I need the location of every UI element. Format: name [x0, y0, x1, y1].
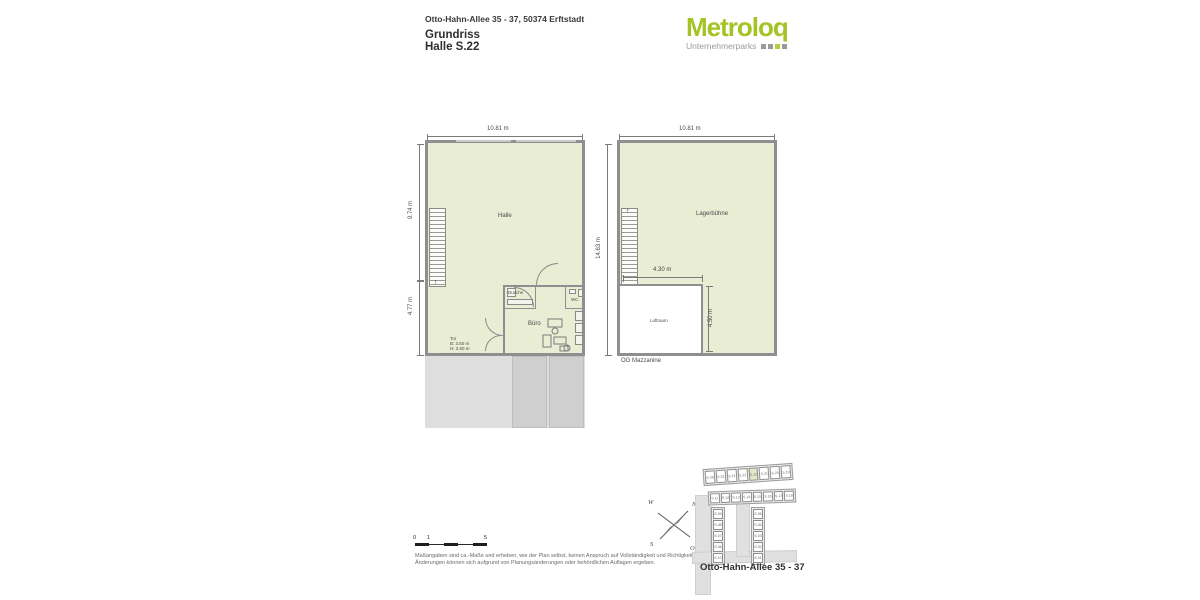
road	[695, 495, 711, 595]
door-arc	[485, 318, 503, 336]
site-unit: S.05	[753, 509, 763, 519]
void-width-line	[623, 277, 703, 278]
site-unit: S.20	[770, 466, 781, 480]
site-building-left-col: S.09S.08S.07S.06S.10	[711, 507, 725, 565]
storage-label: Lagerbühne	[696, 211, 728, 217]
scale-bar: 0 1 5	[415, 543, 487, 547]
mezz-dim-width-line	[619, 136, 775, 137]
office-furniture	[540, 315, 572, 353]
site-unit: S.22	[748, 467, 759, 481]
site-unit: S.23	[737, 468, 748, 482]
ground-dim-upper-label: 9.74 m	[408, 195, 414, 225]
site-unit: S.06	[713, 542, 723, 552]
interior-wall	[503, 285, 505, 357]
interior-wall	[565, 285, 566, 309]
site-unit: S.17	[774, 491, 784, 501]
void-area: Luftraum	[620, 284, 703, 353]
ground-dim-width-line	[427, 136, 583, 137]
ground-plan-outline: ↑ Halle Dusche WC Büro	[425, 140, 585, 356]
site-unit: S.13	[731, 492, 741, 502]
ground-dim-lower-label: 4.77 m	[408, 291, 414, 321]
brand-logo: Metroloq Unternehmerparks	[686, 14, 796, 51]
shelf-fixture	[575, 311, 583, 321]
window-segment	[516, 140, 576, 142]
site-unit: S.15	[752, 492, 762, 502]
mezzanine-plan-outline: ↑ Lagerbühne 4.30 m Luftraum 4.50 m	[617, 140, 777, 356]
site-unit: S.11	[710, 493, 720, 503]
site-unit: S.24	[726, 469, 737, 483]
brand-tagline-text: Unternehmerparks	[686, 41, 756, 51]
door-arc	[536, 263, 558, 285]
site-unit: S.03	[753, 531, 763, 541]
scale-label-5: 5	[484, 535, 487, 541]
site-unit: S.25	[715, 470, 726, 484]
mezz-dim-height-line	[607, 144, 608, 356]
title-unit: Halle S.22	[425, 41, 480, 53]
address-line: Otto-Hahn-Allee 35 - 37, 50374 Erftstadt	[425, 14, 584, 24]
site-map-caption: Otto-Hahn-Allee 35 - 37	[700, 562, 805, 573]
brand-squares-icon	[761, 44, 787, 49]
site-unit: S.18	[784, 491, 794, 501]
sink-fixture	[578, 289, 583, 297]
site-unit: S.09	[713, 509, 723, 519]
staircase: ↑	[429, 208, 446, 287]
compass-s: S	[650, 541, 653, 548]
mezz-dim-height-label: 14.63 m	[596, 233, 602, 263]
office-label: Büro	[528, 321, 541, 327]
wc-label: WC	[571, 297, 579, 302]
door-arc	[485, 335, 501, 351]
door-arc	[514, 287, 534, 307]
brand-name: Metroloq	[686, 14, 796, 40]
interior-wall	[565, 308, 585, 309]
gate-line3: H: 3.50 m	[450, 346, 470, 351]
gate-opening	[436, 351, 484, 354]
void-width-label: 4.30 m	[653, 267, 671, 273]
mezzanine-caption: OG Mazzanine	[621, 358, 661, 364]
title-grundriss: Grundriss	[425, 29, 480, 41]
scale-segment	[473, 543, 487, 546]
shelf-fixture	[575, 335, 583, 345]
site-unit: S.12	[720, 493, 730, 503]
site-building-top: S.26S.25S.24S.23S.22S.21S.20S.19	[703, 463, 794, 486]
compass-icon	[652, 503, 696, 547]
stair-direction-arrow: ↑	[434, 279, 438, 286]
site-building-middle: S.11S.12S.13S.14S.15S.16S.17S.18	[708, 488, 796, 505]
site-unit: S.08	[713, 520, 723, 530]
gate-label: Tor B: 3.50 m H: 3.50 m	[450, 336, 470, 351]
apron-panel	[549, 356, 584, 428]
shelf-fixture	[575, 323, 583, 333]
site-unit: S.14	[742, 492, 752, 502]
void-height-label: 4.50 m	[708, 303, 714, 333]
ground-dim-width-label: 10.81 m	[487, 126, 509, 132]
site-map: W N S O S.26S.25S.24S.23S.22S.21S.20S.19…	[648, 455, 798, 580]
interior-wall	[505, 308, 535, 309]
page-title: Grundriss Halle S.22	[425, 29, 480, 53]
window-segment	[456, 140, 511, 142]
mezz-dim-width-label: 10.81 m	[679, 126, 701, 132]
hall-label: Halle	[498, 213, 512, 219]
site-unit: S.16	[763, 491, 773, 501]
scale-segment	[444, 543, 458, 546]
scale-label-0: 0	[413, 535, 416, 541]
ground-dim-lower-line	[419, 281, 420, 356]
scale-segment	[415, 543, 429, 546]
site-unit: S.02	[753, 542, 763, 552]
ground-dim-upper-line	[419, 144, 420, 281]
wc-fixture	[569, 289, 576, 294]
site-building-right-col: S.05S.04S.03S.02S.01	[751, 507, 765, 565]
scale-label-1: 1	[427, 535, 430, 541]
outdoor-apron	[425, 356, 585, 428]
void-label: Luftraum	[650, 318, 668, 323]
site-unit: S.07	[713, 531, 723, 541]
compass-w: W	[648, 499, 653, 506]
site-unit: S.21	[759, 467, 770, 481]
site-unit: S.19	[781, 465, 792, 479]
stair-direction-arrow: ↑	[626, 208, 630, 215]
site-unit: S.04	[753, 520, 763, 530]
site-unit: S.26	[705, 470, 716, 484]
brand-tagline: Unternehmerparks	[686, 41, 796, 51]
floor-plan-sheet: Otto-Hahn-Allee 35 - 37, 50374 Erftstadt…	[0, 0, 1200, 600]
road	[736, 501, 750, 557]
interior-wall	[535, 285, 536, 309]
apron-panel	[512, 356, 547, 428]
